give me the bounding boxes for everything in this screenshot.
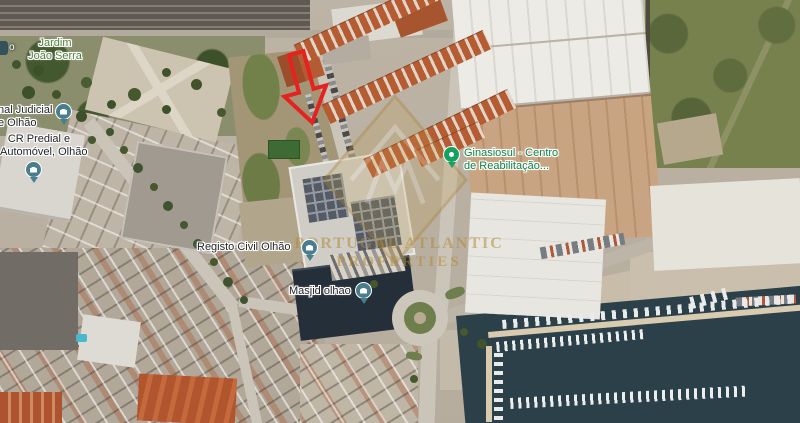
marina-water-patch [690, 395, 800, 423]
dark-office-block [0, 252, 78, 350]
mosque-glyph-icon [360, 288, 367, 294]
label-line: Automóvel, Olhão [0, 146, 78, 159]
label-registo-civil[interactable]: Registo Civil Olhão [197, 241, 291, 254]
pin-head [25, 161, 42, 178]
label-jardim-joao-serra[interactable]: Jardim João Serra [20, 37, 90, 63]
label-cr-predial[interactable]: CR Predial e Automóvel, Olhão [0, 133, 78, 159]
label-ginasiosul[interactable]: Ginasiosul - Centro de Reabilitação... [464, 147, 558, 173]
mosque-pin-icon[interactable] [355, 282, 372, 304]
white-building-southeast [650, 178, 800, 271]
building-glyph-icon [60, 109, 67, 115]
label-line: nal Judicial [0, 104, 52, 117]
roundabout-center [414, 312, 426, 324]
label-line: de Reabilitação... [464, 160, 558, 173]
label-line: e Olhão [0, 117, 52, 130]
gym-building [465, 193, 606, 320]
pin-head [355, 282, 372, 299]
red-roof-complex [137, 373, 237, 423]
map-canvas[interactable]: PORTUGAL ATLANTIC PROPERTIES Jardim João… [0, 0, 800, 423]
railway-yard [0, 0, 310, 34]
pin-tail [60, 119, 68, 125]
road-south-of-roundabout [418, 338, 437, 423]
label-edge-fragment[interactable]: o [9, 42, 15, 54]
tribunal-building [120, 141, 228, 254]
pin-tail [360, 298, 368, 304]
marina-pier-west [486, 346, 492, 422]
market-skylights-1 [302, 173, 348, 223]
civic-pin-icon[interactable] [301, 239, 318, 261]
housing-south-center [300, 344, 418, 423]
civic-pin-icon[interactable] [55, 103, 72, 125]
building-glyph-icon [30, 167, 37, 173]
pin-head [301, 239, 318, 256]
dot-glyph-icon [449, 152, 454, 157]
red-roof-row-sw [0, 392, 62, 423]
building-glyph-icon [306, 245, 313, 251]
pin-tail [306, 255, 314, 261]
health-pin-icon[interactable] [443, 146, 460, 168]
green-court [268, 140, 300, 159]
civic-pin-icon[interactable] [25, 161, 42, 183]
boat-row-west [494, 352, 503, 420]
swimming-pool [76, 334, 87, 342]
label-tribunal-judicial[interactable]: nal Judicial e Olhão [0, 104, 52, 130]
tree-row-avenue [106, 128, 114, 136]
label-line: CR Predial e [0, 133, 78, 146]
market-skylights-2 [351, 195, 402, 251]
label-masjid-olhao[interactable]: Masjid olhao [289, 285, 351, 298]
pin-head [55, 103, 72, 120]
label-line: Ginasiosul - Centro [464, 147, 558, 160]
label-line: Jardim [20, 37, 90, 50]
label-line: João Serra [20, 50, 90, 63]
pin-tail [30, 177, 38, 183]
pin-head [443, 146, 460, 163]
transit-pin-icon[interactable] [0, 41, 8, 55]
pin-tail [448, 162, 456, 168]
